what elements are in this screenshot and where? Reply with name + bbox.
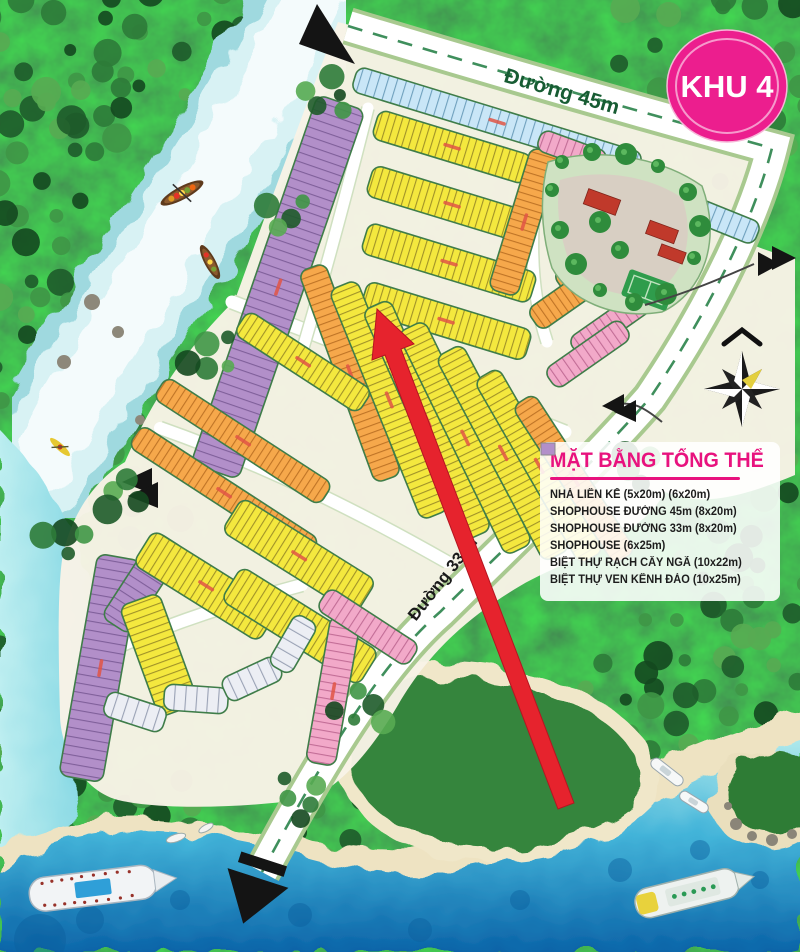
legend-item-biet-thu-rach: BIỆT THỰ RẠCH CÂY NGÃ (10x22m): [550, 557, 774, 569]
legend: MẶT BẰNG TỔNG THỂ NHÀ LIÊN KẾ (5x20m) (6…: [540, 442, 780, 601]
legend-item-shophouse-45: SHOPHOUSE ĐƯỜNG 45m (8x20m): [550, 506, 774, 518]
zone-badge-label: KHU 4: [680, 69, 774, 104]
legend-item-label: BIỆT THỰ RẠCH CÂY NGÃ (10x22m): [550, 557, 742, 569]
legend-item-label: BIỆT THỰ VEN KÊNH ĐÀO (10x25m): [550, 574, 741, 586]
legend-swatch: [541, 443, 555, 455]
legend-item-label: SHOPHOUSE ĐƯỜNG 45m (8x20m): [550, 506, 737, 518]
legend-item-biet-thu-kenh: BIỆT THỰ VEN KÊNH ĐÀO (10x25m): [550, 574, 774, 586]
legend-item-shophouse-33: SHOPHOUSE ĐƯỜNG 33m (8x20m): [550, 523, 774, 535]
legend-divider: [550, 477, 740, 480]
lot-strip-w: [163, 684, 229, 714]
legend-item-lien-ke: NHÀ LIÊN KẾ (5x20m) (6x20m): [550, 489, 774, 501]
legend-item-label: NHÀ LIÊN KẾ (5x20m) (6x20m): [550, 489, 710, 501]
zone-badge: KHU 4: [667, 30, 787, 142]
legend-title: MẶT BẰNG TỔNG THỂ: [550, 450, 761, 472]
legend-item-label: SHOPHOUSE (6x25m): [550, 540, 665, 552]
legend-item-label: SHOPHOUSE ĐƯỜNG 33m (8x20m): [550, 523, 737, 535]
master-plan-map: Đường 45m Đường 33 m: [0, 0, 800, 952]
legend-item-shophouse: SHOPHOUSE (6x25m): [550, 540, 774, 552]
